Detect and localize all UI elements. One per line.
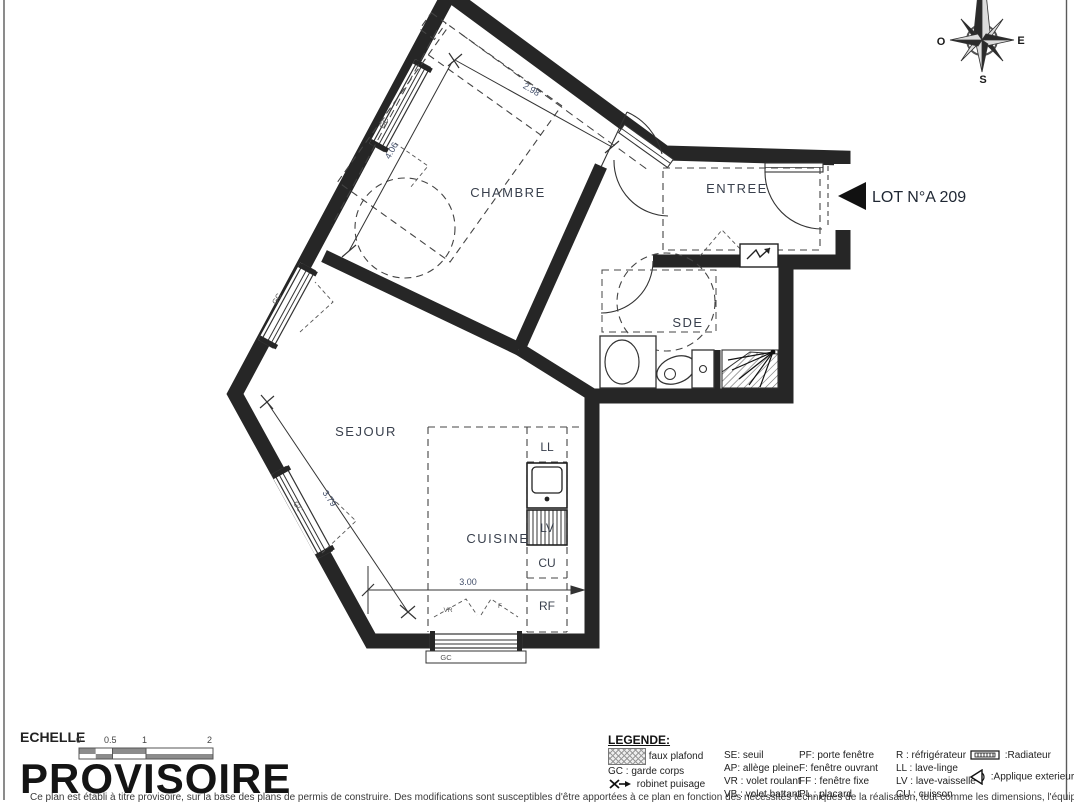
shower-icon: [722, 350, 778, 388]
window-icon: [258, 263, 318, 350]
fridge-label: RF: [539, 599, 555, 613]
scale-tick-1: 1: [142, 735, 147, 745]
turning-circle: [355, 178, 455, 278]
window-f-label: F: [498, 603, 502, 610]
legend-column-3: PF: porte fenêtre F: fenêtre ouvrant FF …: [799, 750, 878, 802]
legend-item: faux plafond: [649, 751, 704, 762]
legend-item: :Applique exterieure: [991, 772, 1074, 783]
robinet-puisage-icon: [608, 779, 632, 789]
faux-plafond-swatch: [608, 748, 646, 765]
legend-item: robinet puisage: [637, 779, 705, 790]
legend-column-2: SE: seuil AP: allège pleine VR : volet r…: [724, 750, 801, 802]
legend-title: LEGENDE:: [608, 733, 670, 747]
page-border: [4, 0, 1067, 800]
room-label-sejour: SEJOUR: [335, 424, 397, 439]
legend-column-4: R : réfrigérateur LL : lave-linge LV : l…: [896, 750, 976, 802]
sde-door-opening: [596, 253, 653, 269]
legend-item: PL : placard: [799, 789, 878, 802]
scale-tick-0: 0: [76, 735, 81, 745]
legend-item: LL : lave-linge: [896, 763, 976, 776]
legend-item: GC : garde corps: [608, 766, 705, 779]
compass-east-label: E: [1017, 35, 1024, 47]
legend-item: F: fenêtre ouvrant: [799, 763, 878, 776]
dim-top: 2.98: [521, 81, 541, 98]
electric-panel-icon: [740, 244, 778, 267]
legend: LEGENDE: faux plafond GC : garde corps r…: [608, 733, 670, 747]
scale-tick-2: 2: [207, 735, 212, 745]
window-vr-label: VR: [443, 607, 452, 614]
legend-column-5: :Radiateur :Applique exterieure: [970, 750, 1074, 782]
legend-item: VB : volet battant: [724, 789, 801, 802]
room-label-chambre: CHAMBRE: [470, 185, 546, 200]
room-label-entree: ENTREE: [706, 181, 768, 196]
legend-item: PF: porte fenêtre: [799, 750, 878, 763]
window-icon: [271, 465, 335, 559]
legend-item: CU : cuisson: [896, 789, 976, 802]
dishwasher-label: LV: [540, 521, 554, 535]
lot-pointer: LOT N°A 209: [838, 182, 966, 210]
dim-bottom: 3.00: [459, 577, 477, 587]
legend-item: SE: seuil: [724, 750, 801, 763]
legend-item: LV : lave-vaisselle: [896, 776, 976, 789]
room-label-sde: SDE: [672, 315, 703, 330]
compass-west-label: O: [937, 36, 946, 48]
applique-icon: [970, 769, 986, 785]
entry-door-icon: [765, 163, 828, 229]
cooktop-label: CU: [538, 556, 555, 570]
legend-item: VR : volet roulant: [724, 776, 801, 789]
legend-item: :Radiateur: [1005, 750, 1051, 761]
washer-label: LL: [540, 440, 554, 454]
toilet-icon: [653, 350, 714, 390]
legend-item: AP: allège pleine: [724, 763, 801, 776]
scale-tick-05: 0.5: [104, 735, 117, 745]
sink-icon: [527, 463, 567, 508]
room-label-cuisine: CUISINE: [466, 531, 529, 546]
compass-south-label: S: [979, 74, 986, 86]
washbasin-icon: [600, 336, 656, 388]
legend-column-1: faux plafond GC : garde corps robinet pu…: [608, 748, 705, 792]
lot-label: LOT N°A 209: [872, 189, 966, 206]
legend-item: FF : fenêtre fixe: [799, 776, 878, 789]
floor-plan-page: { "page": { "lot_label": "LOT N°A 209", …: [0, 0, 1074, 800]
floor-plan-drawing: VR F: [0, 0, 1074, 800]
compass-rose-icon: O E S: [937, 0, 1025, 86]
gc-label: GC: [440, 653, 452, 662]
radiator-icon: [970, 750, 1000, 760]
legend-item: R : réfrigérateur: [896, 750, 976, 763]
